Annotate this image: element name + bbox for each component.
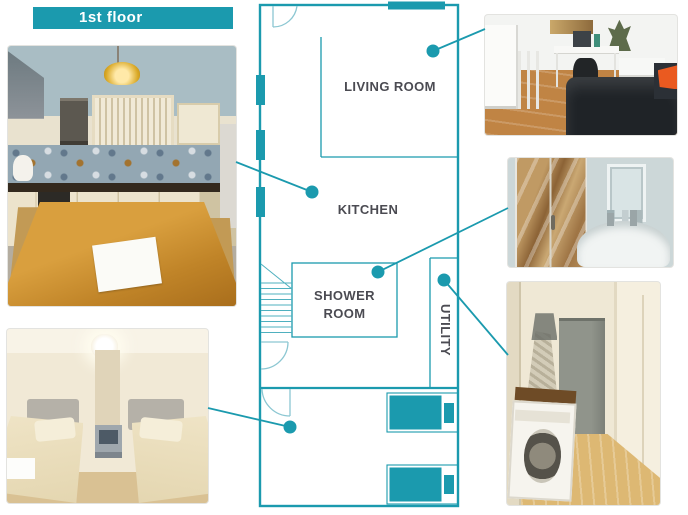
shower-room-label: SHOWER ROOM	[292, 287, 397, 323]
bed-2-mattress	[390, 468, 442, 502]
utility-label: UTILITY	[436, 290, 454, 370]
kitchen-label: KITCHEN	[328, 201, 408, 219]
window-top	[388, 2, 445, 10]
living-room-label: LIVING ROOM	[321, 78, 459, 96]
windows	[256, 2, 445, 218]
bedroom-door-arc	[262, 389, 290, 416]
callout-living-room-dot	[427, 45, 440, 58]
callout-dots	[284, 45, 451, 434]
stairs	[261, 264, 292, 333]
bed-1-pillow	[444, 403, 454, 423]
callout-bedroom-line	[208, 408, 290, 427]
door-arcs	[261, 6, 297, 416]
floor-title: 1st floor	[79, 9, 143, 26]
callout-kitchen-line	[236, 162, 312, 192]
window-left-3	[256, 187, 265, 217]
hall-door-arc	[261, 342, 288, 369]
bed-2-pillow	[444, 475, 454, 494]
bed-1-mattress	[390, 396, 442, 430]
callout-bedroom-dot	[284, 421, 297, 434]
twin-beds	[387, 393, 458, 504]
callout-kitchen-dot	[306, 186, 319, 199]
window-left-1	[256, 75, 265, 105]
floorplan-page: 1st floor LIVING ROOM KITCHEN SHOWER ROO…	[0, 0, 688, 515]
callout-shower-dot	[372, 266, 385, 279]
shower-room-label-line2: ROOM	[292, 305, 397, 323]
window-left-2	[256, 130, 265, 160]
entrance-door-arc	[273, 6, 297, 27]
callout-utility-dot	[438, 274, 451, 287]
floor-title-banner: 1st floor	[33, 7, 233, 29]
shower-room-label-line1: SHOWER	[292, 287, 397, 305]
